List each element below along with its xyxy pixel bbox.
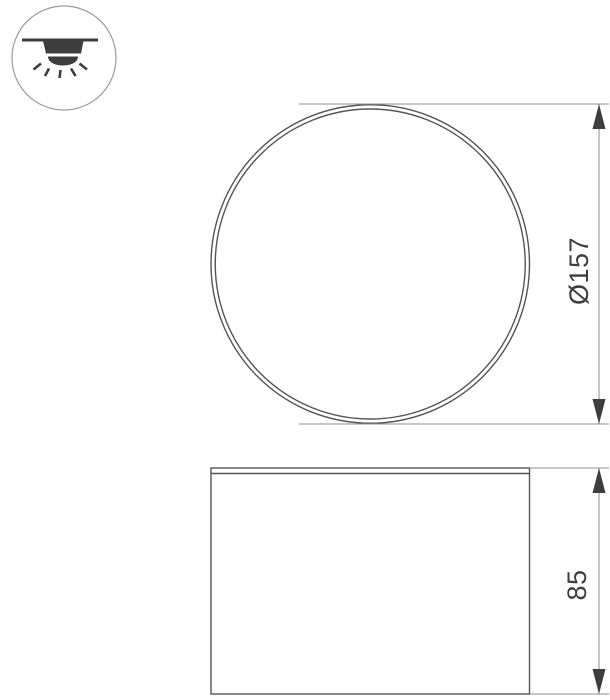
lamp-dome (48, 57, 78, 66)
light-ray (45, 69, 49, 77)
fixture-body-outline (211, 468, 530, 694)
mount-type-icon (12, 6, 116, 110)
top-view: Ø157 (211, 104, 609, 424)
top-view-dimension-lines (299, 104, 609, 424)
arrowhead-up-icon (593, 104, 606, 129)
drawing-canvas: Ø157 85 (0, 0, 610, 700)
side-view: 85 (211, 468, 609, 694)
icon-glyph-fills (22, 39, 98, 66)
light-ray (71, 69, 76, 77)
light-ray (34, 64, 42, 70)
arrowhead-down-icon (593, 669, 606, 694)
arrowhead-up-icon (593, 468, 606, 493)
fixture-inner-circle (215, 109, 525, 419)
lamp-housing (43, 41, 84, 54)
arrowhead-down-icon (593, 399, 606, 424)
fixture-outer-circle (211, 105, 530, 424)
top-view-outlines (211, 105, 530, 424)
diameter-dimension-label: Ø157 (564, 237, 594, 305)
light-rays (34, 64, 88, 79)
height-dimension-label: 85 (562, 569, 592, 600)
light-ray (60, 70, 61, 78)
light-ray (80, 64, 88, 70)
side-view-outlines (211, 468, 530, 694)
technical-drawing-page: Ø157 85 (0, 0, 610, 700)
